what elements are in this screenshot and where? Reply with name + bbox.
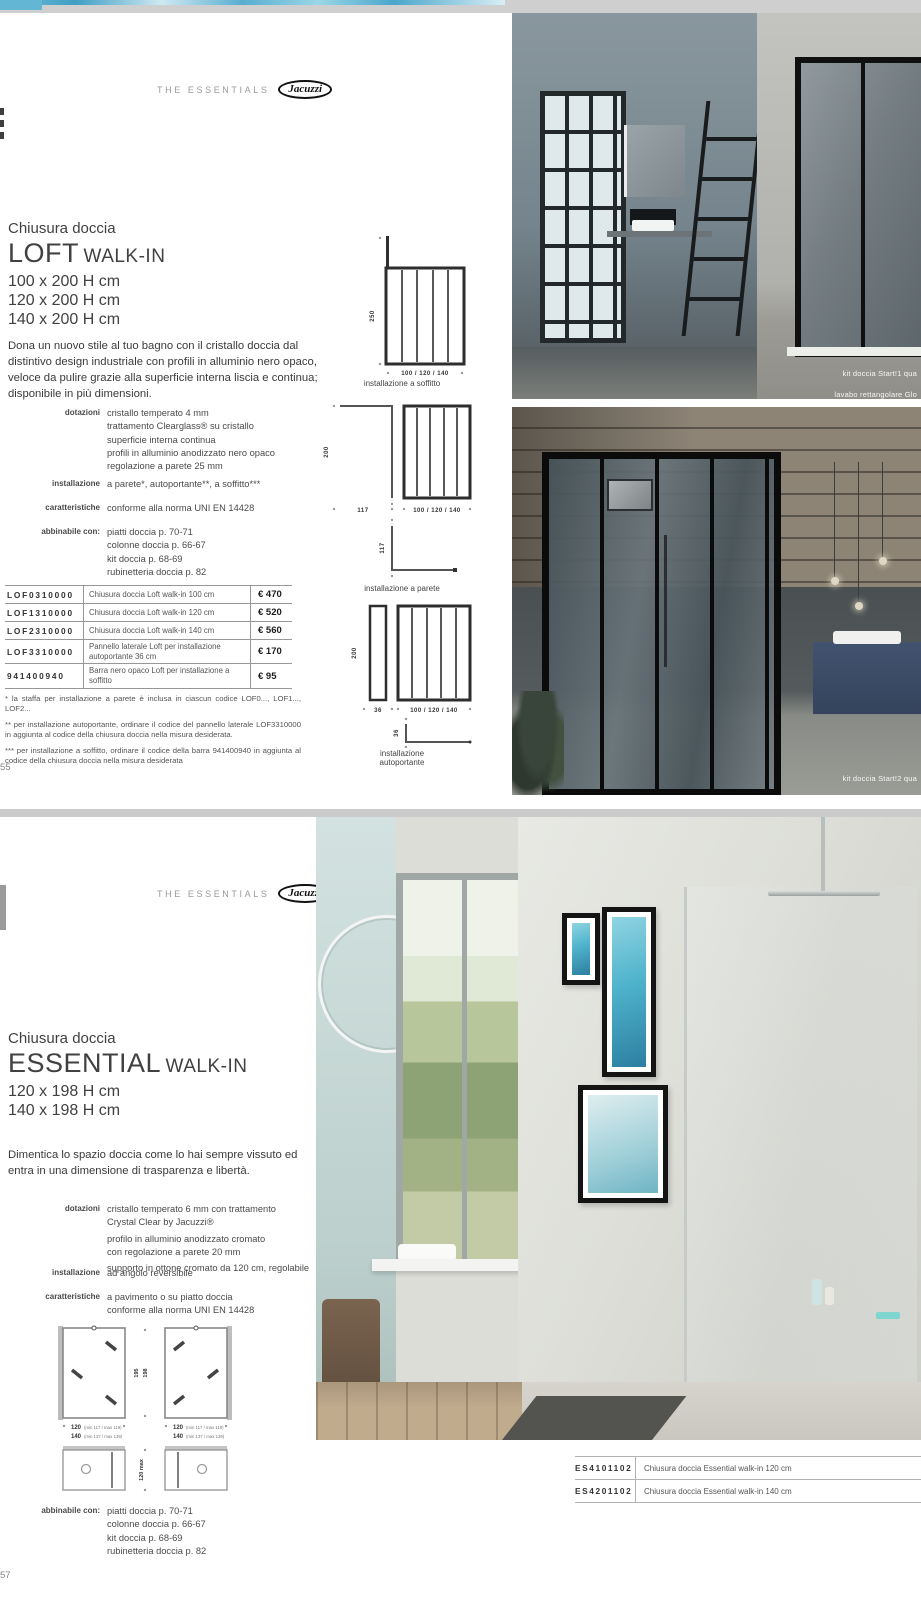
photo-right-room — [757, 13, 921, 399]
spec-label: dotazioni — [8, 1203, 107, 1275]
spec-line: piatti doccia p. 70-71 — [107, 1505, 325, 1517]
product-type: WALK-IN — [83, 246, 165, 267]
loft-walkin-glass — [542, 452, 781, 795]
footnote: *** per installazione a soffitto, ordina… — [5, 746, 301, 767]
product-desc: Pannello laterale Loft per installazione… — [83, 640, 251, 663]
plan-depth-dimension: 36 — [394, 729, 400, 737]
spec-line: rubinetteria doccia p. 82 — [107, 1545, 325, 1557]
product-price: € 520 — [251, 604, 292, 621]
table-row: 941400940 Barra nero opaco Loft per inst… — [5, 664, 292, 688]
product-code: 941400940 — [5, 664, 83, 687]
spec-label: caratteristiche — [8, 1291, 107, 1318]
product-price: € 470 — [251, 586, 292, 603]
spec-installazione: installazione ad angolo reversibile — [8, 1267, 325, 1280]
product-name: ESSENTIAL — [8, 1048, 161, 1078]
product-code: ES4101102 — [575, 1463, 635, 1473]
spec-line: kit doccia p. 68-69 — [107, 553, 325, 565]
spec-label: caratteristiche — [8, 502, 107, 515]
product-desc: Chiusura doccia Essential walk-in 140 cm — [635, 1480, 921, 1502]
shower-arm — [768, 891, 880, 896]
width-tolerance: (min 117 / max 119) — [84, 1425, 122, 1430]
product-code: LOF3310000 — [5, 640, 83, 663]
bottle — [825, 1287, 834, 1305]
spec-line: a pavimento o su piatto doccia — [107, 1291, 325, 1303]
product-title-block: Chiusura doccia LOFT WALK-IN 100 x 200 H… — [8, 220, 165, 330]
table-row: LOF0310000 Chiusura doccia Loft walk-in … — [5, 586, 292, 604]
photo-loft-ambient-top: kit doccia Start!1 qua lavabo rettangola… — [512, 13, 921, 399]
width-dimension: 120 — [173, 1425, 184, 1431]
panel-width-dimension: 36 — [374, 708, 382, 714]
counter-shelf — [372, 1259, 537, 1271]
wall-depth-dimension: 117 — [357, 508, 368, 514]
footnote: * la staffa per installazione a parete è… — [5, 694, 301, 715]
size-option: 120 x 198 H cm — [8, 1082, 247, 1101]
spec-line: rubinetteria doccia p. 82 — [107, 566, 325, 578]
diagram-drawing: 200 117 100 / 120 / 140 117 — [322, 398, 482, 583]
mirror — [624, 125, 685, 197]
wall-art-frame — [578, 1085, 668, 1203]
spec-label: abbinabile con: — [8, 1505, 107, 1558]
height-dimension: 200 — [324, 446, 330, 458]
product-code: LOF0310000 — [5, 586, 83, 603]
footnotes: * la staffa per installazione a parete è… — [5, 694, 301, 771]
width-dimension: 120 — [71, 1425, 82, 1431]
pendant-light — [882, 462, 883, 557]
wall-art-frame — [562, 913, 600, 985]
size-option: 120 x 200 H cm — [8, 291, 165, 310]
plan-width-dimension: 120 max — [139, 1458, 145, 1481]
spec-line: a parete*, autoportante**, a soffitto*** — [107, 478, 325, 490]
photo-essential-ambient — [316, 817, 921, 1440]
spec-line: conforme alla norma UNI EN 14428 — [107, 502, 325, 514]
spec-label: installazione — [8, 1267, 107, 1280]
width-tolerance: (min 117 / max 119) — [186, 1425, 224, 1430]
previous-page-photo-strip — [0, 0, 505, 5]
wood-floor — [316, 1382, 522, 1440]
table-row: LOF3310000 Pannello laterale Loft per in… — [5, 640, 292, 664]
spec-line: superficie interna continua — [107, 434, 325, 446]
spec-label: installazione — [8, 478, 107, 491]
garden-window — [396, 873, 532, 1267]
product-description: Dona un nuovo stile al tuo bagno con il … — [8, 338, 318, 402]
product-desc: Chiusura doccia Loft walk-in 120 cm — [83, 604, 251, 621]
height-dimension: 198 — [143, 1368, 149, 1377]
rain-shower-head — [607, 479, 653, 511]
table-row: ES4101102 Chiusura doccia Essential walk… — [575, 1457, 921, 1480]
pendant-light — [858, 462, 859, 602]
series-name: THE ESSENTIALS — [157, 85, 269, 95]
diagram-installazione-autoportante: 200 36 100 / 120 / 140 36 installazione … — [322, 598, 482, 767]
width-dimension: 140 — [173, 1434, 184, 1440]
spec-line: cristallo temperato 6 mm con trattamento — [107, 1203, 325, 1215]
width-dimension: 100 / 120 / 140 — [413, 508, 461, 514]
catalog-spread: THE ESSENTIALS Jacuzzi Chiusura doccia L… — [0, 0, 921, 1600]
size-option: 140 x 200 H cm — [8, 310, 165, 329]
product-desc: Chiusura doccia Loft walk-in 100 cm — [83, 586, 251, 603]
diagram-installazione-soffitto: 250 100 / 120 / 140 installazione a soff… — [322, 228, 482, 388]
product-price: € 95 — [251, 664, 292, 687]
diagram-essential-dimensions: 195 198 120 (min 117 / max 119) 140 (min… — [50, 1320, 240, 1495]
diagram-drawing: 200 36 100 / 120 / 140 36 — [322, 598, 482, 748]
product-type: WALK-IN — [166, 1056, 248, 1077]
spec-label: abbinabile con: — [8, 526, 107, 579]
product-price: € 170 — [251, 640, 292, 663]
spec-caratteristiche: caratteristiche a pavimento o su piatto … — [8, 1291, 325, 1318]
shower-column — [664, 535, 667, 667]
diagram-caption: installazione a parete — [322, 584, 482, 593]
spec-abbinabile: abbinabile con: piatti doccia p. 70-71 c… — [8, 526, 325, 579]
spec-line: Crystal Clear by Jacuzzi® — [107, 1216, 325, 1228]
codes-table: ES4101102 Chiusura doccia Essential walk… — [575, 1456, 921, 1503]
previous-page-photo-corner — [0, 0, 42, 10]
diagram-installazione-parete: 200 117 100 / 120 / 140 117 installazion… — [322, 398, 482, 593]
height-dimension: 200 — [352, 647, 358, 659]
diagram-drawing: 195 198 120 (min 117 / max 119) 140 (min… — [50, 1320, 240, 1495]
spec-line: conforme alla norma UNI EN 14428 — [107, 1304, 325, 1316]
table-row: LOF2310000 Chiusura doccia Loft walk-in … — [5, 622, 292, 640]
spec-line: colonne doccia p. 66-67 — [107, 539, 325, 551]
size-option: 100 x 200 H cm — [8, 272, 165, 291]
top-page-gutter — [0, 0, 921, 13]
width-tolerance: (min 137 / max 139) — [186, 1434, 225, 1439]
table-row: LOF1310000 Chiusura doccia Loft walk-in … — [5, 604, 292, 622]
page-index-tick — [0, 108, 4, 115]
jacuzzi-logo: Jacuzzi — [278, 80, 332, 99]
size-option: 140 x 198 H cm — [8, 1101, 247, 1120]
spec-dotazioni: dotazioni cristallo temperato 4 mm tratt… — [8, 407, 325, 473]
product-code: ES4201102 — [575, 1486, 635, 1496]
diagram-caption: installazione a soffitto — [322, 379, 482, 388]
height-dimension: 195 — [134, 1368, 140, 1377]
spec-line: con regolazione a parete 20 mm — [107, 1246, 325, 1258]
plant — [512, 691, 564, 795]
section-side-tab — [0, 885, 6, 930]
table-row: ES4201102 Chiusura doccia Essential walk… — [575, 1480, 921, 1503]
spec-line: piatti doccia p. 70-71 — [107, 526, 325, 538]
spec-abbinabile: abbinabile con: piatti doccia p. 70-71 c… — [8, 1505, 325, 1558]
spec-caratteristiche: caratteristiche conforme alla norma UNI … — [8, 502, 325, 515]
photo-caption: lavabo rettangolare Glo — [834, 390, 917, 399]
spec-line: regolazione a parete 25 mm — [107, 460, 325, 472]
page-index-tick — [0, 120, 4, 127]
industrial-window — [540, 91, 626, 343]
bottle — [812, 1279, 822, 1305]
vanity-cabinet — [813, 642, 921, 714]
spec-label: dotazioni — [8, 407, 107, 473]
width-tolerance: (min 137 / max 139) — [84, 1434, 123, 1439]
plan-depth-dimension: 117 — [380, 542, 386, 553]
spec-line: trattamento Clearglass® su cristallo — [107, 420, 325, 432]
spec-line: kit doccia p. 68-69 — [107, 1532, 325, 1544]
spec-line: colonne doccia p. 66-67 — [107, 1518, 325, 1530]
product-kicker: Chiusura doccia — [8, 1030, 247, 1047]
product-price: € 560 — [251, 622, 292, 639]
footnote: ** per installazione autoportante, ordin… — [5, 720, 301, 741]
spec-line: cristallo temperato 4 mm — [107, 407, 325, 419]
towel-ladder — [682, 101, 765, 336]
brand-header: THE ESSENTIALS Jacuzzi — [157, 80, 332, 99]
series-name: THE ESSENTIALS — [157, 889, 269, 899]
diagram-caption: installazione autoportante — [359, 749, 445, 767]
washbasin — [632, 220, 674, 231]
page-number: 57 — [0, 1570, 11, 1581]
washbasin — [833, 631, 901, 644]
width-dimension: 100 / 120 / 140 — [410, 708, 458, 714]
product-code: LOF1310000 — [5, 604, 83, 621]
black-framed-shower-glass — [795, 57, 921, 357]
essential-walkin-glass — [684, 887, 917, 1427]
product-description: Dimentica lo spazio doccia come lo hai s… — [8, 1147, 323, 1179]
page-index-tick — [0, 132, 4, 139]
page-divider — [0, 809, 921, 817]
spec-installazione: installazione a parete*, autoportante**,… — [8, 478, 325, 491]
shower-pipe — [821, 817, 825, 893]
product-title-block: Chiusura doccia ESSENTIAL WALK-IN 120 x … — [8, 1030, 247, 1120]
pendant-light — [834, 462, 835, 577]
photo-loft-ambient-bottom: kit doccia Start!2 qua — [512, 407, 921, 795]
product-kicker: Chiusura doccia — [8, 220, 165, 237]
page-number: 55 — [0, 762, 11, 773]
shower-tray — [787, 347, 921, 356]
product-desc: Chiusura doccia Essential walk-in 120 cm — [635, 1457, 921, 1479]
spec-line: profilo in alluminio anodizzato cromato — [107, 1233, 325, 1245]
spec-line: profili in alluminio anodizzato nero opa… — [107, 447, 325, 459]
price-table: LOF0310000 Chiusura doccia Loft walk-in … — [5, 585, 292, 689]
product-code: LOF2310000 — [5, 622, 83, 639]
diagram-drawing: 250 100 / 120 / 140 — [322, 228, 482, 378]
photo-caption: kit doccia Start!2 qua — [843, 774, 917, 783]
soap-dish — [876, 1312, 900, 1319]
height-dimension: 250 — [370, 310, 376, 322]
width-dimension: 140 — [71, 1434, 82, 1440]
spec-dotazioni: dotazioni cristallo temperato 6 mm con t… — [8, 1203, 325, 1275]
width-dimension: 100 / 120 / 140 — [401, 371, 449, 377]
product-name: LOFT — [8, 238, 79, 268]
product-desc: Chiusura doccia Loft walk-in 140 cm — [83, 622, 251, 639]
photo-caption: kit doccia Start!1 qua — [843, 369, 917, 378]
spec-line: ad angolo reversibile — [107, 1267, 325, 1279]
product-desc: Barra nero opaco Loft per installazione … — [83, 664, 251, 687]
wall-art-frame — [602, 907, 656, 1077]
floor — [512, 347, 757, 399]
brand-header: THE ESSENTIALS Jacuzzi — [157, 884, 332, 903]
photo-left-room — [512, 13, 757, 399]
